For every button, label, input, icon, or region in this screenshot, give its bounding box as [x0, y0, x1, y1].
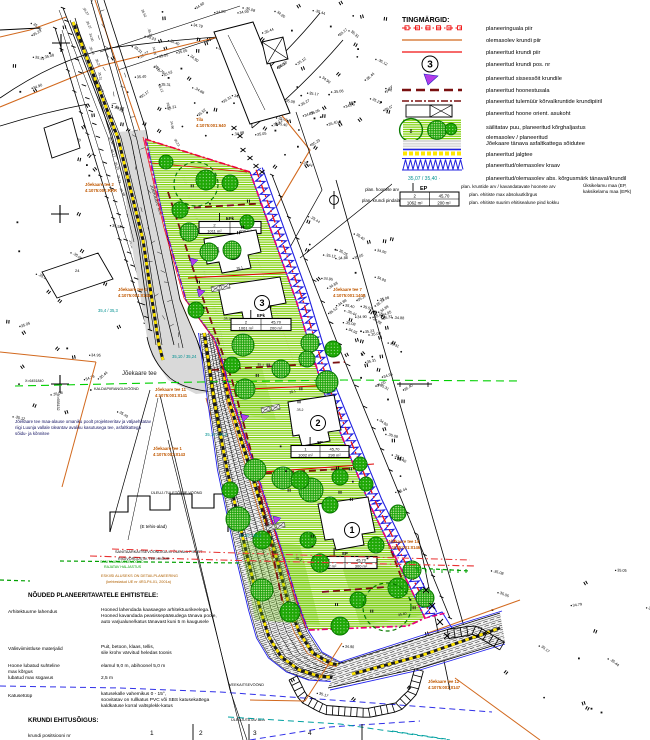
- svg-text:Katusetüüp: Katusetüüp: [8, 693, 33, 699]
- svg-text:planeeritud jalgtee: planeeritud jalgtee: [486, 152, 532, 158]
- svg-text:katusekalle vahemikus 0 - 15°,: katusekalle vahemikus 0 - 15°,: [101, 691, 166, 697]
- svg-text:8: 8: [410, 129, 413, 135]
- svg-text:planeeritud tulemüür kõrvalkru: planeeritud tulemüür kõrvalkruntide krun…: [486, 99, 602, 105]
- svg-text:35,07 / 35,40 ·: 35,07 / 35,40 ·: [408, 176, 441, 182]
- svg-text:sile krohv värvitud heledas to: sile krohv värvitud heledas toonis: [101, 650, 172, 656]
- svg-text:EPk: EPk: [226, 216, 235, 221]
- svg-text:planeeritud/olemasolev kraav: planeeritud/olemasolev kraav: [486, 163, 560, 169]
- svg-text:4:1075:001:RRR: 4:1075:001:RRR: [85, 188, 117, 193]
- svg-text:1011 m²: 1011 m²: [207, 228, 222, 233]
- svg-text:3: 3: [427, 60, 433, 71]
- svg-text:elamul 9,0 m, abihoonel 5,0 m: elamul 9,0 m, abihoonel 5,0 m: [101, 663, 165, 669]
- svg-text:34.90: 34.90: [345, 645, 355, 650]
- svg-text:4:1075:001:0147: 4:1075:001:0147: [428, 685, 461, 690]
- svg-text:200 m²: 200 m²: [270, 325, 283, 330]
- svg-text:EP: EP: [420, 186, 428, 192]
- svg-text:RAJATAV HALJASTUS: RAJATAV HALJASTUS: [104, 565, 142, 569]
- svg-text:Jõekaare tee 14: Jõekaare tee 14: [388, 539, 420, 544]
- svg-text:.34.88: .34.88: [394, 316, 405, 320]
- svg-text:4:1075:001:0146: 4:1075:001:0146: [388, 545, 421, 550]
- svg-text:kaksikelamu maa (EPk): kaksikelamu maa (EPk): [583, 189, 632, 194]
- svg-text:RIIGIVÕRGUSTIK TEE HKÕUR: RIIGIVÕRGUSTIK TEE HKÕUR: [118, 556, 170, 561]
- svg-text:plan. krundi pindala: plan. krundi pindala: [362, 198, 401, 203]
- svg-text:max kõrgus: max kõrgus: [8, 669, 33, 675]
- svg-text:plan. ehitiste suurim ehitisea: plan. ehitiste suurim ehitisealune pind …: [469, 200, 559, 205]
- svg-text:olemasolev krundi piir: olemasolev krundi piir: [486, 38, 541, 44]
- svg-text:Jõekaare tee maa-alause omanik: Jõekaare tee maa-alause omaniku poolt pr…: [15, 419, 152, 424]
- svg-text:Puit, betoon, klaas, tellis,: Puit, betoon, klaas, tellis,: [101, 644, 154, 650]
- svg-text:Tila: Tila: [196, 117, 204, 122]
- svg-text:Jõekaare tee 1: Jõekaare tee 1: [153, 446, 183, 451]
- svg-text:säilitatav puu, planeeritud kõ: säilitatav puu, planeeritud kõrghaljastu…: [486, 125, 586, 131]
- svg-text:ESKIISI ALUSEKS ON DETAILPLANE: ESKIISI ALUSEKS ON DETAILPLANEERING: [101, 574, 178, 578]
- svg-text:2: 2: [199, 730, 203, 737]
- svg-text:EP: EP: [342, 551, 348, 556]
- svg-text:plan. ehitiste max absoluutkõr: plan. ehitiste max absoluutkõrgus: [469, 192, 538, 197]
- svg-text:plan. hoonete arv: plan. hoonete arv: [365, 187, 400, 192]
- svg-text:35,10 / 35,2: 35,10 / 35,2: [205, 432, 228, 437]
- svg-text:(E tehis-alad): (E tehis-alad): [140, 524, 167, 529]
- svg-text:Jõekaare tee 2: Jõekaare tee 2: [85, 182, 115, 187]
- svg-text:1002 m²: 1002 m²: [298, 452, 313, 457]
- svg-text:plan. kruntide arv / kavandata: plan. kruntide arv / kavandatavate hoone…: [461, 184, 556, 189]
- svg-text:290 m²: 290 m²: [328, 452, 341, 457]
- svg-text:ÜLEUJ./TULETÕRJE VÖÖND: ÜLEUJ./TULETÕRJE VÖÖND: [151, 490, 203, 495]
- svg-text:Jõekaare tänava asfaltkattega: Jõekaare tänava asfaltkattega sõidutee: [486, 141, 585, 147]
- svg-text:Jõekaare tee 12: Jõekaare tee 12: [428, 679, 460, 684]
- svg-text:34.95: 34.95: [91, 353, 101, 357]
- svg-text:45,70: 45,70: [329, 446, 340, 451]
- svg-text:soovitatav on rullkatus PVC võ: soovitatav on rullkatus PVC või SBS katu…: [101, 697, 210, 703]
- svg-text:4:1075:001:640: 4:1075:001:640: [196, 123, 226, 128]
- svg-text:planeeritud sissessõit krundil: planeeritud sissessõit krundile: [486, 76, 562, 82]
- svg-text:35,10 / 35,24: 35,10 / 35,24: [172, 354, 197, 359]
- svg-text:Jõekaare tee: Jõekaare tee: [122, 371, 157, 377]
- svg-text:1: 1: [349, 525, 354, 535]
- svg-text:1062 m²: 1062 m²: [407, 201, 423, 206]
- svg-text:lubatud max sügavus: lubatud max sügavus: [8, 675, 54, 681]
- svg-text:1: 1: [150, 730, 154, 737]
- svg-text:3: 3: [259, 298, 264, 308]
- svg-text:krundi positsiooni nr: krundi positsiooni nr: [28, 733, 71, 739]
- svg-text:200 m²: 200 m²: [437, 201, 451, 206]
- svg-text:Välisviimistluse materjalid: Välisviimistluse materjalid: [8, 646, 63, 652]
- svg-text:riigi Luunja vallale üleantav: riigi Luunja vallale üleantav avaliku ka…: [15, 425, 142, 430]
- svg-text:Jõekaare tee 11: Jõekaare tee 11: [155, 387, 187, 392]
- svg-text:EPk: EPk: [257, 313, 266, 318]
- svg-text:35,30 / 35,2: 35,30 / 35,2: [239, 533, 262, 538]
- svg-text:planeeritud/olemasolev abs. kõ: planeeritud/olemasolev abs. kõrgusmärk t…: [486, 176, 626, 182]
- svg-text:KALDAPIIRANGUVÖÖND: KALDAPIIRANGUVÖÖND: [94, 387, 139, 391]
- svg-text:planeeritud hoonestusala: planeeritud hoonestusala: [486, 88, 550, 94]
- svg-text:planeeritud krundi pos. nr: planeeritud krundi pos. nr: [486, 62, 550, 68]
- svg-text:45,70: 45,70: [356, 557, 367, 562]
- svg-text:kaldkatuse korral valtsplekk-k: kaldkatuse korral valtsplekk-katus: [101, 703, 173, 709]
- svg-text:TINGMÄRGID:: TINGMÄRGID:: [402, 16, 449, 24]
- svg-text:.35.2: .35.2: [223, 317, 231, 321]
- svg-text:35.05: 35.05: [617, 568, 627, 572]
- svg-text:(kehtestatud UE nr 4R3-P4-01,: (kehtestatud UE nr 4R3-P4-01, 2001a): [106, 580, 172, 584]
- svg-text:Y=658132: Y=658132: [56, 394, 60, 411]
- svg-text:planeeritud krundi piir: planeeritud krundi piir: [486, 50, 540, 56]
- svg-text:EP: EP: [317, 440, 323, 445]
- svg-text:.35.2: .35.2: [296, 408, 304, 412]
- svg-text:34.90: 34.90: [357, 315, 367, 319]
- svg-text:35,4 / 35,3: 35,4 / 35,3: [98, 308, 118, 313]
- svg-text:VEEKAITSEVÖÖND: VEEKAITSEVÖÖND: [229, 683, 264, 687]
- svg-text:24: 24: [75, 268, 80, 273]
- svg-text:Hoone lubatud suhteline: Hoone lubatud suhteline: [8, 663, 60, 669]
- svg-text:planeeringuala piir: planeeringuala piir: [486, 26, 533, 32]
- svg-text:Jõekaare tee 4: Jõekaare tee 4: [118, 287, 148, 292]
- svg-text:3: 3: [253, 730, 257, 737]
- svg-text:sõidu- ja kõnnitee: sõidu- ja kõnnitee: [15, 431, 50, 436]
- svg-text:45,70: 45,70: [439, 194, 450, 199]
- svg-text:.34.88: .34.88: [337, 256, 348, 261]
- svg-text:4:1075:001:0144: 4:1075:001:0144: [118, 293, 151, 298]
- svg-text:4: 4: [308, 730, 312, 737]
- svg-text:35.40: 35.40: [137, 75, 147, 80]
- svg-text:Üksikelamu maa (EP,: Üksikelamu maa (EP,: [583, 182, 627, 188]
- svg-text:4:1075:001:1405: 4:1075:001:1405: [333, 293, 366, 298]
- svg-text:4:1075:001:0141: 4:1075:001:0141: [155, 393, 188, 398]
- svg-text:Hooned kavandada peasissepääsu: Hooned kavandada peasissepääsudega tänav…: [101, 613, 217, 619]
- svg-text:2,5 m: 2,5 m: [101, 675, 113, 681]
- svg-text:KRUNDI EHITUSÕIGUS:: KRUNDI EHITUSÕIGUS:: [28, 717, 98, 724]
- svg-text:Hooned lahendada kaasaegse arh: Hooned lahendada kaasaegse arhitektuurik…: [101, 607, 209, 613]
- svg-text:45,70: 45,70: [271, 319, 282, 324]
- svg-text:4:1075:001:0143: 4:1075:001:0143: [153, 452, 186, 457]
- svg-text:Arhitektuurne lahendus: Arhitektuurne lahendus: [8, 609, 58, 615]
- svg-text:auto varjualune/katus tänavast: auto varjualune/katus tänavast kuni 5 m …: [101, 619, 209, 625]
- svg-text:planeeritud hoone orient. asuk: planeeritud hoone orient. asukoht: [486, 111, 571, 117]
- svg-text:X=6451840: X=6451840: [25, 379, 44, 383]
- svg-text:Jõekaare tee 7: Jõekaare tee 7: [333, 287, 363, 292]
- svg-text:2: 2: [315, 418, 320, 428]
- svg-text:NÕUDED PLANEERITAVATELE EHITIS: NÕUDED PLANEERITAVATELE EHITISTELE:: [28, 592, 158, 599]
- svg-text:1061 m²: 1061 m²: [239, 325, 254, 330]
